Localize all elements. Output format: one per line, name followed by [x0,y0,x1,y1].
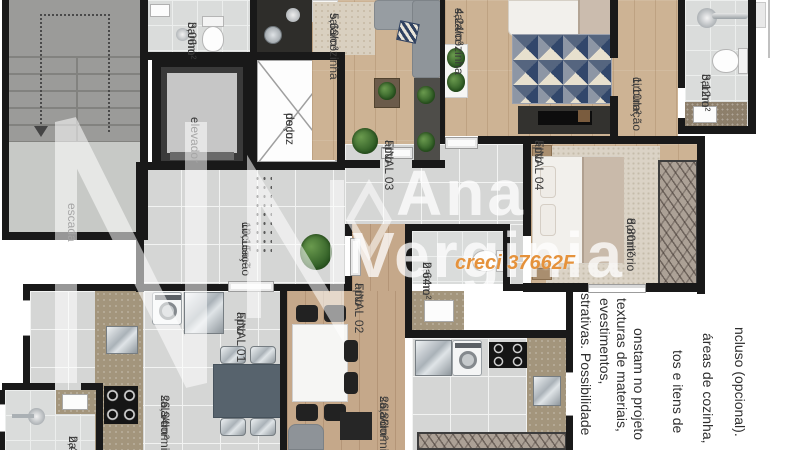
toilet [202,26,224,52]
wall-circ04-left-b [610,96,618,136]
apto02-chair-5 [344,340,358,362]
wall-corridor-top [136,162,345,170]
washer-drum [159,302,177,320]
apto02-cooktop [489,342,527,368]
wall-apto03-bottom-a [345,160,380,168]
apto02-chair-6 [344,372,358,394]
apto04-decor-box [578,110,590,122]
apto02-chair-3 [296,404,318,421]
wall-apto02-entry-left-a [345,224,352,236]
wall-banho02-to-dorm [503,284,531,291]
washer-controls [155,295,181,300]
wall-apto01-02-divider [280,291,287,450]
wall-banho02-left [405,224,412,290]
note-line-1: strativas. Possibilidade [578,293,594,435]
apto03-kitchen-sink [264,26,282,44]
window-apto01-left [23,300,30,336]
wall-banho02-right [503,224,510,284]
wall-dormitorio-right [697,136,705,294]
elevator-door [170,152,234,160]
wall-banho04-bottom [678,126,756,134]
wall-apto01-left-b [23,336,30,390]
toilet-banho04-tank [738,48,748,74]
stairs-arrow [34,126,48,137]
apto03-faucet [286,8,300,22]
apto04-blanket [578,0,612,36]
plant-apto03-door [352,128,378,154]
wall-apto02-kitchen-top [412,330,573,338]
wall-banho04-left-a [678,0,685,88]
outside-right-line [768,0,770,58]
wall-corridor-bottom-b [274,284,352,291]
dormitorio-wardrobe [658,160,698,288]
dormitorio-pillow-2 [540,204,556,236]
doormat-apto01 [228,281,274,292]
floor-plan: escada elevador poço de luz banho 3,06m²… [0,0,800,450]
wall-left-outer [2,0,9,240]
wall-apto02-kitchen-left [405,290,412,338]
stairs-dotted-path [40,14,110,132]
apto01-chair-2 [250,346,276,364]
note-line-6: áreas de cozinha, [700,333,716,444]
apto04-triangle-rug [512,34,612,104]
wall-apto02-right-a [566,291,573,372]
wall-dormitorio-bottom-a [523,283,588,292]
wall-apto01-left-a [23,284,30,300]
window-apto02-right [566,372,573,416]
note-line-3: texturas de materiais, [614,298,630,432]
wall-dormitorio-bottom-b [646,283,705,292]
dormitorio-nightstand-2 [532,268,552,280]
note-line-7: ncluso (opcional). [732,327,748,437]
wall-circ04-left-a [610,0,618,58]
note-line-5: tos e itens de [670,350,686,433]
apto01-dining-table [213,364,287,418]
dormitorio-blanket [582,157,624,263]
apto02-steel-panel [415,340,452,376]
wall-banho02-top [405,224,510,231]
sliding-door-dormitorio [588,284,646,293]
apto02-chair-1 [296,305,318,322]
wall-apto03-bottom-b [412,160,445,168]
note-line-4: onstam no projeto [631,328,647,440]
apto01-sink [106,326,138,354]
sofa-pillow [396,20,420,44]
toilet-banho04-bowl [712,49,739,73]
apto02-chair-2 [324,305,346,322]
apto01-cooktop [104,386,138,424]
shower-arm-banho04 [712,13,748,19]
apto02-tv [340,412,372,440]
wall-apto03-04-divider [440,0,445,136]
plant-shelf-2 [447,72,465,92]
plant-balcony-1 [417,86,435,104]
window-banho01-left [0,404,5,432]
wall-banho01-right [96,383,103,450]
apto01-washing-machine [152,292,182,325]
wall-banho04-right [748,0,756,134]
apto02-armchair [288,424,324,450]
doormat-apto02 [350,238,361,276]
toilet-banho02-bowl [472,250,498,272]
apto02-sink [533,376,561,406]
apto02-dining-table [292,324,348,402]
bath-sink [150,4,170,17]
apto03-rug [313,2,375,55]
elevator-cab [167,73,237,153]
apto01-chair-4 [250,418,276,436]
wall-apto04-bottom-b [478,136,705,144]
wall-apto02-right-b [566,416,573,450]
corridor-floor-c [510,224,523,284]
plant-corridor [300,234,332,270]
apto02-wardrobe [417,432,567,450]
apto01-steel-panel [184,292,224,334]
note-line-2: evestimentos, [597,298,613,384]
plant-balcony-2 [417,132,435,152]
wall-corridor-left [136,162,144,292]
shower-bar-banho01 [12,414,34,418]
wall-banho-top-bottom [147,52,344,60]
banho01-sink [62,394,88,410]
wall-lightwell-left [250,60,257,168]
toilet-tank [202,16,224,27]
apto02-washing-machine [452,340,482,376]
plant-side-table [378,82,396,100]
wall-banho01-top-a [2,383,55,390]
corridor-runner-mat [254,174,272,258]
banho02-sink [424,300,454,322]
wall-banho-top-right [250,0,257,60]
doormat-apto04 [445,137,478,149]
washer-controls [455,343,481,348]
apto01-chair-3 [220,418,246,436]
apto03-counter [257,0,312,52]
washer-drum [459,351,477,369]
wall-corridor-bottom-a [23,284,228,291]
